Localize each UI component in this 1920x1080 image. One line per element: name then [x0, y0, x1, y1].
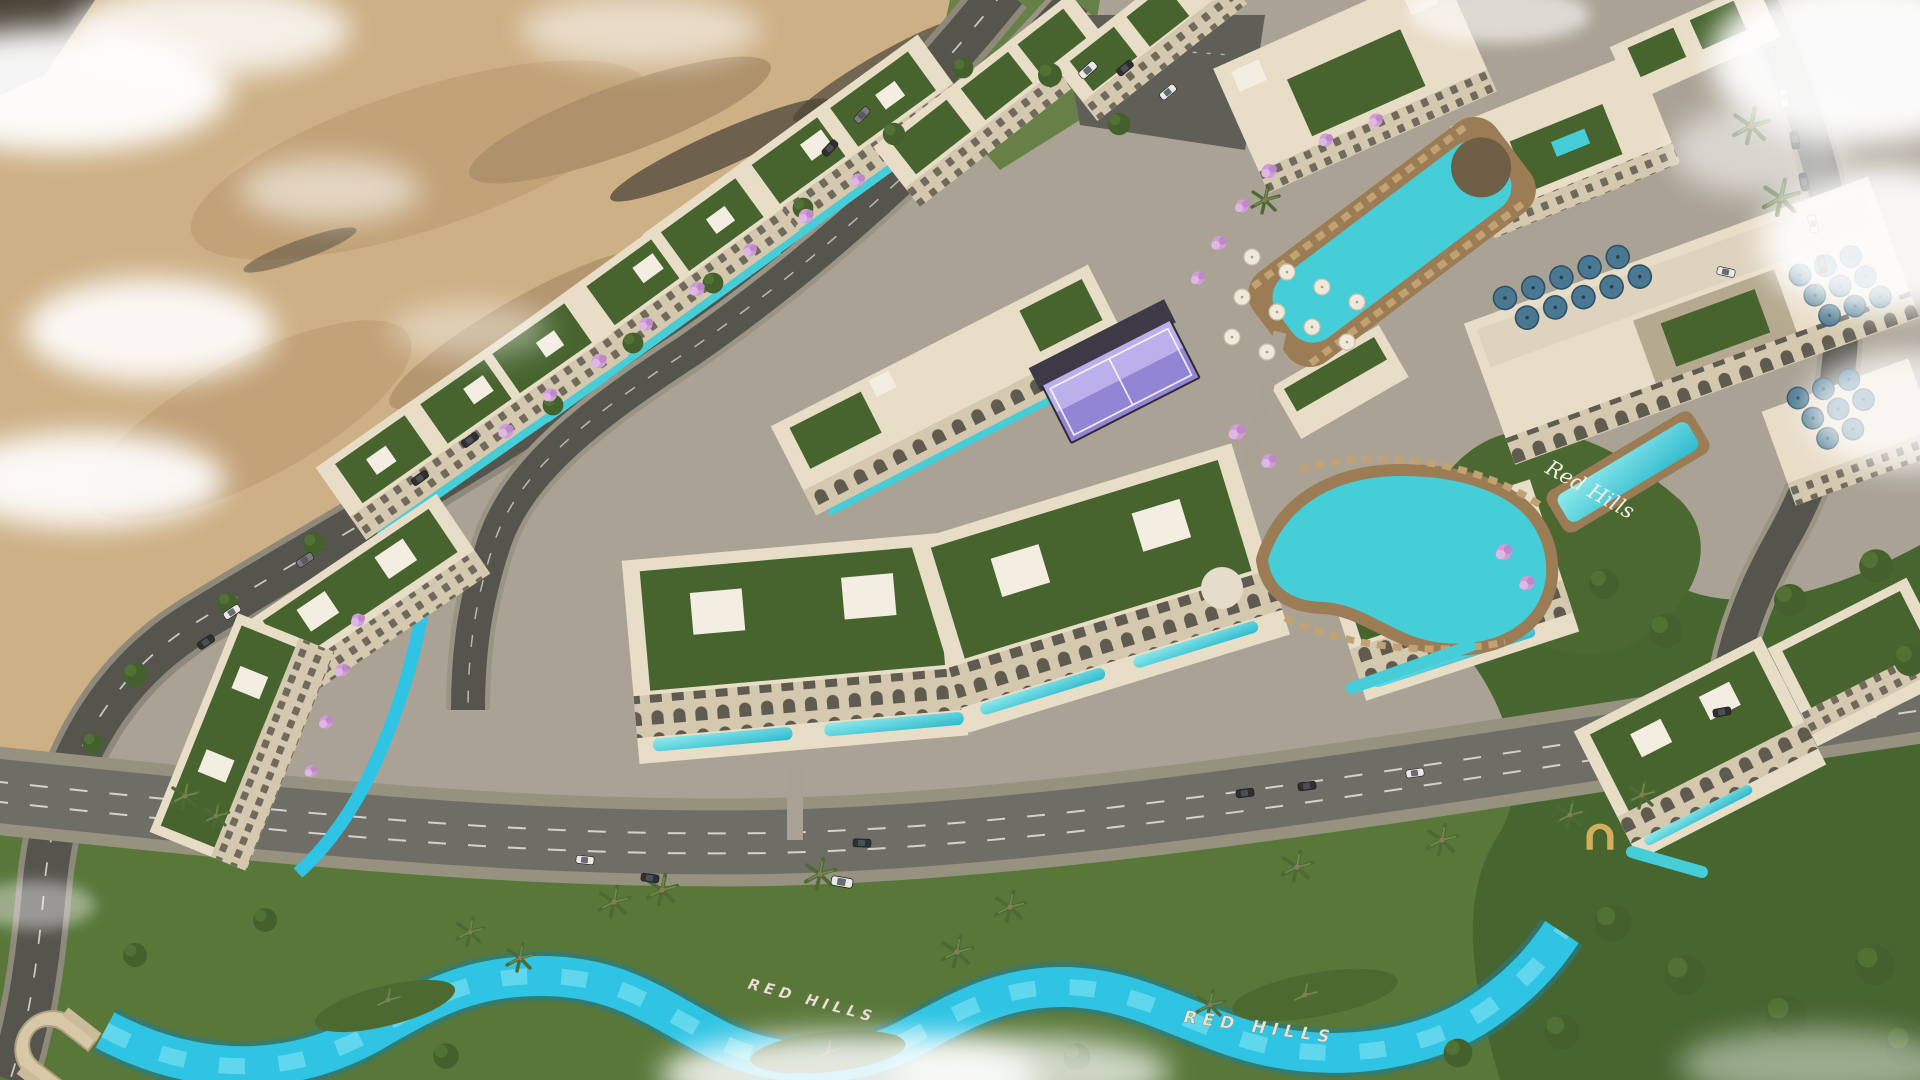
- masterplan-scene: Red Hills RED HILLS RED HILLS: [0, 0, 1920, 1080]
- car: [576, 855, 595, 865]
- car: [853, 839, 871, 848]
- pool-platform: [1201, 567, 1243, 609]
- aerial-render-canvas: Red Hills RED HILLS RED HILLS: [0, 0, 1920, 1080]
- central-block-west: [622, 532, 969, 764]
